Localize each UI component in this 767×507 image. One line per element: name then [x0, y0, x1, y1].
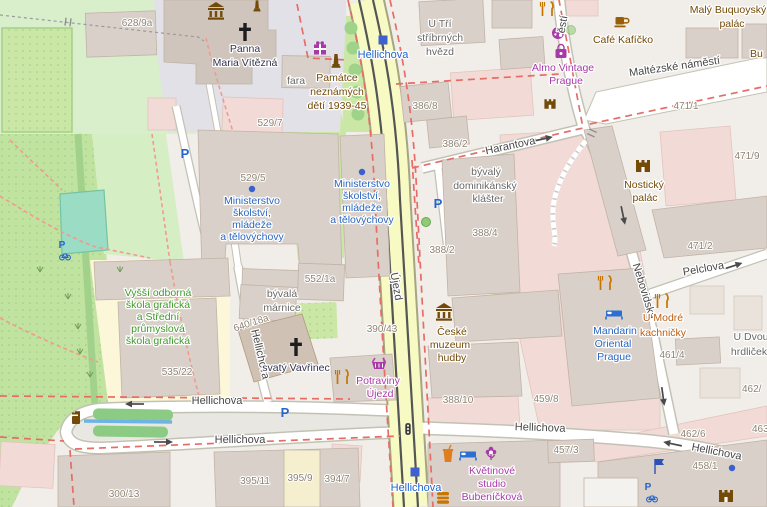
svg-text:Vyšší odborná: Vyšší odborná [125, 287, 192, 299]
house-number: 471/1 [673, 101, 698, 112]
svg-text:bývalá: bývalá [267, 288, 298, 300]
house-number: 300/13 [109, 489, 140, 500]
svg-text:České: České [437, 325, 467, 338]
house-number: 386/8 [412, 101, 437, 112]
poi-dot [729, 465, 735, 471]
palace-attraction-icon [719, 490, 733, 502]
poi-label-vavrinec: svatý Vavřinec [262, 362, 330, 374]
svg-text:Bubeníčková: Bubeníčková [462, 491, 523, 503]
svg-text:P: P [59, 240, 66, 251]
tree-icon [422, 218, 431, 227]
poi-label-cafe-kaficko: Café Kafíčko [593, 34, 653, 46]
svg-text:U Dvou: U Dvou [733, 331, 767, 343]
house-number: 628/9a [122, 18, 153, 29]
house-number: 552/1a [305, 274, 336, 285]
svg-text:Ministerstvo: Ministerstvo [334, 178, 390, 190]
traffic-signals-icon [405, 423, 410, 435]
svg-text:škola grafická: škola grafická [126, 299, 190, 311]
poi-label-mandarin: Mandarin Oriental Prague [593, 325, 637, 363]
svg-text:Památce: Památce [316, 72, 358, 84]
svg-text:neznámých: neznámých [310, 86, 364, 98]
house-number: 395/9 [287, 473, 312, 484]
svg-text:průmyslová: průmyslová [131, 323, 185, 335]
svg-text:bývalý: bývalý [471, 166, 502, 178]
svg-text:muzeum: muzeum [430, 339, 471, 351]
svg-text:hvězd: hvězd [426, 46, 454, 58]
pitch-area [60, 190, 108, 254]
svg-text:palác: palác [719, 18, 744, 30]
svg-text:Újezd: Újezd [367, 387, 394, 400]
svg-text:P: P [281, 405, 290, 420]
svg-text:hrdliček: hrdliček [731, 346, 767, 358]
house-number: 458/1 [692, 461, 717, 472]
svg-text:P: P [434, 196, 443, 211]
street-label-hellichova: Hellichova [515, 421, 567, 435]
svg-text:mládeže: mládeže [342, 202, 382, 214]
svg-text:palác: palác [632, 192, 657, 204]
svg-text:mládeže: mládeže [232, 219, 272, 231]
house-number: 388/4 [472, 228, 497, 239]
svg-text:školství,: školství, [233, 207, 271, 219]
house-number: 461/4 [659, 350, 684, 361]
water-channel [84, 421, 172, 422]
svg-text:Mandarin: Mandarin [593, 325, 637, 337]
svg-text:Almo Vintage: Almo Vintage [532, 62, 594, 74]
palace-attraction-icon [636, 160, 650, 172]
attraction-icon [544, 99, 555, 109]
svg-text:škola grafická: škola grafická [126, 335, 190, 347]
svg-text:Potraviny: Potraviny [356, 375, 401, 387]
house-number: 529/5 [240, 173, 265, 184]
svg-text:a Střední: a Střední [137, 311, 180, 323]
svg-text:Prague: Prague [549, 75, 583, 87]
parking-icon: P [281, 405, 290, 420]
poi-label-bu-partial: Bu [750, 48, 763, 60]
svg-text:dětí 1939-45: dětí 1939-45 [308, 100, 367, 112]
svg-text:P: P [181, 146, 190, 161]
house-number: 471/9 [734, 151, 759, 162]
svg-text:Prague: Prague [597, 351, 631, 363]
svg-text:Květinové: Květinové [469, 465, 515, 477]
street-label-hellichova: Hellichova [215, 434, 267, 446]
house-number: 462/6 [680, 429, 705, 440]
bush-icon [345, 22, 358, 35]
poi-dot [249, 186, 255, 192]
svg-text:hudby: hudby [438, 352, 467, 364]
tram-stop-marker [411, 468, 420, 477]
svg-text:márnice: márnice [263, 302, 301, 314]
tram-stop-label: Hellichova [358, 49, 410, 61]
svg-text:Panna: Panna [230, 43, 261, 55]
house-number: 535/22 [162, 367, 193, 378]
drinking-water-icon [72, 412, 80, 424]
svg-text:kachničky: kachničky [640, 327, 687, 339]
svg-text:Ministerstvo: Ministerstvo [224, 195, 280, 207]
house-number: 457/3 [553, 445, 578, 456]
svg-text:stříbrných: stříbrných [417, 32, 463, 44]
svg-text:dominikánský: dominikánský [453, 180, 517, 192]
house-number: 462/ [742, 384, 762, 395]
house-number: 388/10 [443, 395, 474, 406]
house-number: 395/11 [240, 476, 270, 487]
house-number: 463/ [752, 424, 767, 435]
house-number: 388/2 [429, 245, 454, 256]
svg-text:U Tří: U Tří [428, 18, 451, 30]
parking-icon: P [181, 146, 190, 161]
svg-text:klášter: klášter [473, 193, 504, 205]
house-number: 529/7 [257, 118, 282, 129]
poi-dot [359, 169, 365, 175]
svg-text:a tělovýchovy: a tělovýchovy [220, 231, 284, 243]
street-label-hellichova: Hellichova [192, 395, 244, 407]
svg-text:Malý Buquoyský: Malý Buquoyský [690, 4, 767, 16]
house-number: 394/7 [324, 474, 349, 485]
svg-text:a tělovýchovy: a tělovýchovy [330, 214, 394, 226]
svg-text:školství,: školství, [343, 190, 381, 202]
svg-text:U Modré: U Modré [643, 312, 683, 324]
map-canvas[interactable]: P P P P P Újezd Hellichova Hellichova He… [0, 0, 767, 507]
svg-text:P: P [645, 482, 652, 493]
svg-text:Maria Vítězná: Maria Vítězná [213, 57, 278, 69]
svg-text:studio: studio [478, 478, 506, 490]
map-svg: P P P P P Újezd Hellichova Hellichova He… [0, 0, 767, 507]
tram-stop-label: Hellichova [391, 482, 443, 494]
tram-stop-marker [379, 36, 388, 45]
poi-label-fara: fara [287, 75, 305, 87]
house-number: 386/2 [442, 139, 467, 150]
svg-text:Nostický: Nostický [624, 179, 664, 191]
house-number: 459/8 [533, 394, 558, 405]
svg-text:Oriental: Oriental [595, 338, 632, 350]
parking-icon: P [434, 196, 443, 211]
house-number: 390/43 [367, 324, 398, 335]
house-number: 471/2 [687, 241, 712, 252]
